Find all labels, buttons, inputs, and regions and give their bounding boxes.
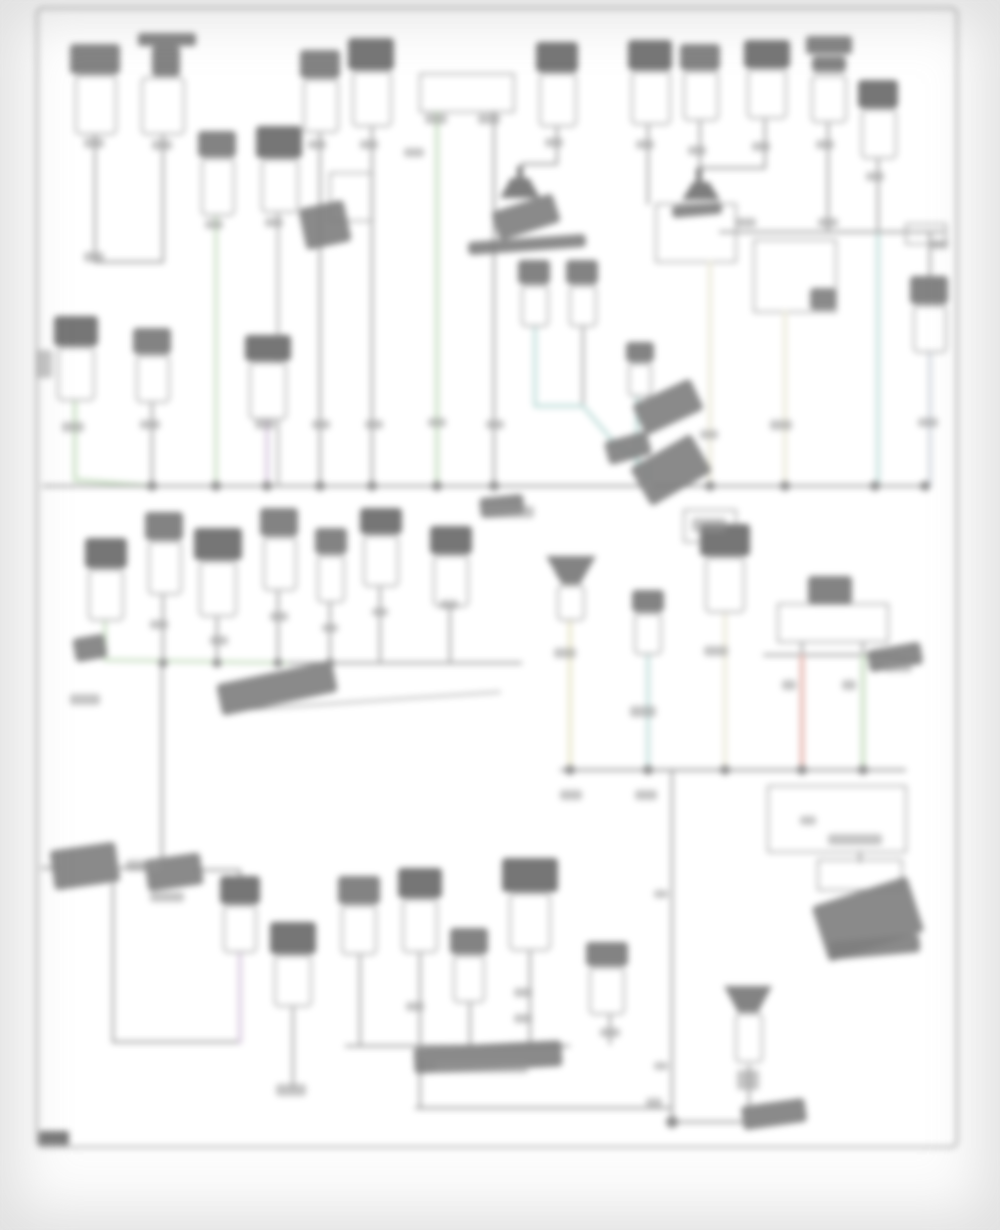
label-smudge	[360, 140, 378, 149]
connector-cap	[220, 876, 260, 904]
label-smudge	[486, 420, 504, 429]
label-smudge	[478, 114, 500, 124]
connector-body	[275, 956, 311, 1006]
connector-cap	[744, 40, 790, 68]
connector-body	[454, 956, 484, 1002]
label-smudge	[752, 142, 770, 151]
connector-cap	[85, 538, 127, 568]
label-smudge	[600, 1028, 620, 1037]
label-smudge	[545, 138, 563, 147]
connector-symbol	[910, 276, 948, 352]
connector-body	[540, 74, 576, 126]
connector-body	[364, 536, 398, 586]
splice-blob	[810, 288, 836, 310]
label-smudge	[828, 834, 882, 845]
connector-body	[862, 110, 896, 158]
connector-cap	[315, 528, 347, 554]
junction-dot	[643, 765, 653, 775]
connector-body	[590, 968, 624, 1014]
junction-dot	[367, 481, 377, 491]
connector-cap	[133, 328, 171, 354]
label-smudge	[372, 608, 388, 616]
label-smudge	[700, 430, 718, 439]
label-smudge	[770, 420, 792, 430]
label-smudge	[514, 988, 532, 997]
connector-symbol	[85, 538, 127, 620]
label-smudge	[818, 218, 838, 227]
label-smudge	[36, 350, 52, 378]
connector-cap	[586, 942, 628, 966]
connector-symbol	[133, 328, 171, 402]
label-smudge	[436, 1062, 528, 1073]
label-smudge	[265, 218, 283, 227]
connector-symbol	[198, 131, 236, 215]
connector-cap	[260, 508, 298, 536]
connector-cap	[518, 260, 550, 284]
connector-cap	[450, 928, 488, 954]
connector-symbol	[70, 44, 120, 134]
connector-body	[684, 72, 718, 120]
junction-dot	[797, 765, 807, 775]
connector-body	[142, 78, 184, 134]
label-smudge	[152, 140, 172, 150]
connector-body	[224, 906, 256, 952]
connector-symbol	[566, 260, 598, 326]
label-smudge	[646, 1098, 662, 1107]
connector-cap-bar	[138, 33, 196, 46]
connector-cap	[430, 526, 472, 554]
junction-dot	[315, 481, 325, 491]
connector-body	[748, 70, 786, 118]
connector-symbol	[502, 858, 558, 950]
connector-cap	[70, 44, 120, 74]
connector-body	[262, 160, 298, 212]
connector-symbol	[256, 126, 302, 212]
label-smudge	[554, 648, 576, 658]
junction-dot	[147, 481, 157, 491]
connector-symbol	[300, 50, 340, 132]
connector-body	[632, 72, 670, 124]
component-box	[778, 604, 888, 642]
ground-distribution-diagram	[0, 0, 1000, 1230]
connector-cap	[360, 508, 402, 534]
label-smudge	[84, 138, 104, 148]
label-smudge	[150, 892, 184, 902]
label-smudge	[635, 790, 657, 800]
connector-body	[89, 570, 123, 620]
connector-body	[202, 159, 234, 215]
connector-cap	[245, 335, 291, 361]
label-smudge	[560, 790, 582, 800]
connector-symbol	[632, 590, 664, 654]
label-smudge	[654, 890, 668, 898]
connector-symbol	[245, 335, 291, 419]
label-smudge	[210, 636, 228, 645]
label-smudge	[126, 860, 160, 871]
connector-body	[137, 356, 169, 402]
label-smudge	[816, 140, 834, 149]
junction-dot	[666, 1116, 678, 1128]
connector-body	[558, 586, 584, 620]
label-smudge	[866, 172, 884, 181]
connector-symbol	[270, 922, 316, 1006]
corner-page-label-smudge	[39, 1131, 69, 1145]
connector-symbol	[536, 42, 578, 126]
junction-dot	[780, 481, 790, 491]
connector-body	[522, 286, 548, 326]
label-smudge	[70, 694, 100, 705]
label-smudge	[428, 418, 446, 427]
label-smudge	[482, 506, 534, 518]
label-smudge	[276, 1084, 306, 1096]
connector-symbol	[145, 512, 183, 594]
connector-symbol	[194, 528, 242, 616]
connector-cap	[300, 50, 340, 78]
connector-cap	[812, 56, 846, 72]
connector-cap	[736, 990, 760, 1012]
connector-body	[403, 900, 437, 952]
connector-cap	[536, 42, 578, 72]
junction-dot	[213, 659, 222, 668]
connector-cap	[338, 876, 380, 904]
junction-dot	[432, 481, 442, 491]
label-smudge	[636, 140, 654, 149]
junction-dot	[858, 765, 868, 775]
connector-symbol	[260, 508, 298, 590]
connector-body	[149, 542, 181, 594]
junction-dot	[211, 481, 221, 491]
label-smudge	[736, 218, 756, 227]
label-smudge	[404, 148, 424, 157]
label-smudge	[884, 662, 912, 672]
label-smudge	[365, 420, 383, 429]
diagram-content	[0, 0, 1000, 1230]
connector-cap	[145, 512, 183, 540]
connector-body	[58, 348, 94, 400]
connector-symbol	[806, 36, 852, 122]
connector-body	[706, 558, 744, 612]
label-smudge	[842, 680, 856, 690]
connector-body	[629, 364, 651, 396]
label-smudge	[688, 146, 706, 155]
label-smudge	[514, 1014, 532, 1023]
label-smudge	[704, 646, 728, 656]
label-smudge	[782, 680, 796, 690]
junction-dot	[159, 659, 168, 668]
label-smudge	[322, 624, 338, 632]
label-smudge	[312, 420, 330, 429]
junction-dot	[920, 481, 930, 491]
wiring-diagram-page	[0, 0, 1000, 1230]
connector-symbol	[54, 316, 98, 400]
connector-symbol	[348, 38, 394, 126]
connector-cap	[348, 38, 394, 70]
connector-body	[510, 894, 550, 950]
connector-cap	[152, 46, 180, 76]
label-smudge	[692, 518, 726, 532]
label-smudge	[84, 252, 104, 262]
connector-symbol	[315, 528, 347, 602]
connector-body	[250, 363, 286, 419]
connector-symbol	[430, 526, 472, 606]
connector-body	[264, 538, 296, 590]
connector-symbol	[518, 260, 550, 326]
connector-symbol	[700, 524, 750, 612]
label-smudge	[737, 1070, 759, 1090]
label-smudge	[918, 418, 938, 427]
connector-cap	[502, 858, 558, 892]
connector-body	[76, 76, 116, 134]
label-smudge	[62, 422, 84, 432]
junction-dot	[489, 481, 499, 491]
connector-body	[914, 306, 946, 352]
connector-cap	[556, 560, 584, 578]
connector-cap	[256, 126, 302, 158]
connector-cap	[808, 576, 852, 604]
connector-body	[304, 80, 338, 132]
connector-body	[353, 72, 391, 126]
label-smudge	[308, 140, 326, 149]
connector-body	[200, 562, 236, 616]
connector-body	[570, 286, 596, 326]
connector-body	[812, 76, 846, 122]
junction-dot	[326, 659, 335, 668]
connector-symbol	[398, 868, 442, 952]
junction-dot	[720, 765, 730, 775]
connector-cap	[628, 40, 672, 70]
label-smudge	[270, 612, 288, 621]
connector-symbol	[626, 342, 654, 396]
label-smudge	[800, 816, 816, 825]
component-box	[420, 74, 514, 112]
connector-body	[342, 906, 376, 954]
junction-dot	[644, 482, 652, 490]
connector-cap	[566, 260, 598, 284]
connector-body	[635, 614, 661, 654]
connector-body	[434, 556, 468, 606]
junction-dot	[870, 481, 880, 491]
connector-symbol	[338, 876, 380, 954]
connector-cap	[270, 922, 316, 954]
connector-cap	[910, 276, 948, 304]
connector-symbol	[808, 576, 852, 604]
label-smudge	[425, 114, 447, 124]
label-smudge	[930, 240, 948, 249]
label-smudge	[255, 420, 275, 429]
connector-cap	[54, 316, 98, 346]
connector-cap	[398, 868, 442, 898]
connector-symbol	[450, 928, 488, 1002]
connector-cap	[626, 342, 654, 362]
connector-symbol	[586, 942, 628, 1014]
connector-cap	[858, 80, 898, 108]
connector-symbol	[744, 40, 790, 118]
label-smudge	[654, 1062, 668, 1070]
connector-cap	[680, 44, 720, 70]
junction-dot	[565, 765, 575, 775]
junction-dot	[274, 659, 283, 668]
connector-cap-bar	[806, 36, 852, 54]
connector-symbol	[680, 44, 720, 120]
connector-symbol	[220, 876, 260, 952]
label-smudge	[150, 620, 168, 629]
label-smudge	[630, 706, 656, 717]
label-smudge	[140, 420, 160, 429]
label-smudge	[440, 600, 458, 609]
junction-dot	[262, 481, 272, 491]
connector-symbol	[628, 40, 672, 124]
connector-body	[318, 556, 344, 602]
label-smudge	[406, 1002, 424, 1011]
connector-cap	[198, 131, 236, 157]
label-smudge	[205, 220, 223, 229]
connector-body	[736, 1014, 762, 1062]
connector-symbol	[858, 80, 898, 158]
junction-dot	[705, 481, 715, 491]
connector-symbol	[360, 508, 402, 586]
connector-cap	[632, 590, 664, 612]
connector-cap	[194, 528, 242, 560]
